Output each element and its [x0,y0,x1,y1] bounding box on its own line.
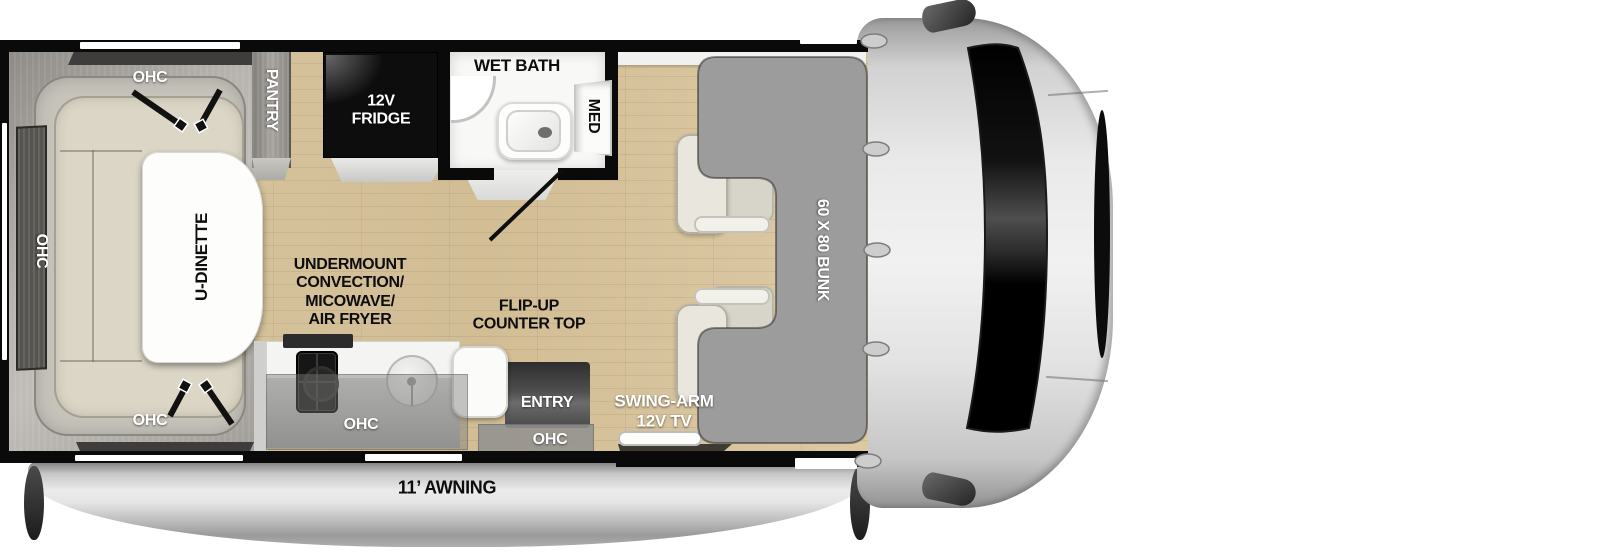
label-appliance: UNDERMOUNT CONVECTION/ MICOWAVE/ AIR FRY… [294,256,407,330]
label-bunk: 60 X 80 BUNK [813,199,831,301]
label-fridge-line2: FRIDGE [352,111,411,129]
label-ohc-kitchen: OHC [344,416,379,434]
bath-door-swing-line [490,170,563,240]
label-fridge-line1: 12V [352,93,411,111]
label-pantry: PANTRY [262,69,280,131]
speaker-tips-bottom [178,379,213,393]
speaker-marks-top [133,90,220,124]
label-u-dinette: U-DINETTE [192,213,212,301]
label-awning: 11’ AWNING [398,478,496,499]
label-appliance-line2: CONVECTION/ [294,275,407,293]
label-appliance-line1: UNDERMOUNT [294,256,407,274]
speaker-tips-top [174,118,208,133]
label-ohc-top: OHC [133,69,168,87]
label-appliance-line4: AIR FRYER [294,311,407,329]
floorplan-canvas: OHC OHC OHC OHC OHC PANTRY 12V FRIDGE WE… [0,0,1600,553]
label-tv-line1: SWING-ARM [614,391,713,411]
speaker-marks-bottom [170,386,232,424]
label-med: MED [584,99,602,134]
shape-overlay [0,0,1600,553]
label-entry: ENTRY [521,394,573,412]
label-wet-bath: WET BATH [474,56,560,76]
label-tv-line2: 12V TV [614,411,713,431]
label-ohc-bottom: OHC [133,412,168,430]
windshield [967,44,1047,432]
label-ohc-entry: OHC [533,431,568,449]
bunk-60x80 [698,57,867,443]
label-flip-line2: COUNTER TOP [473,316,586,334]
label-ohc-rear: OHC [32,234,50,269]
label-swing-arm-tv: SWING-ARM 12V TV [614,391,713,430]
label-flip-line1: FLIP-UP [473,298,586,316]
label-flip-up-counter: FLIP-UP COUNTER TOP [473,298,586,335]
label-fridge: 12V FRIDGE [352,93,411,130]
label-appliance-line3: MICOWAVE/ [294,293,407,311]
